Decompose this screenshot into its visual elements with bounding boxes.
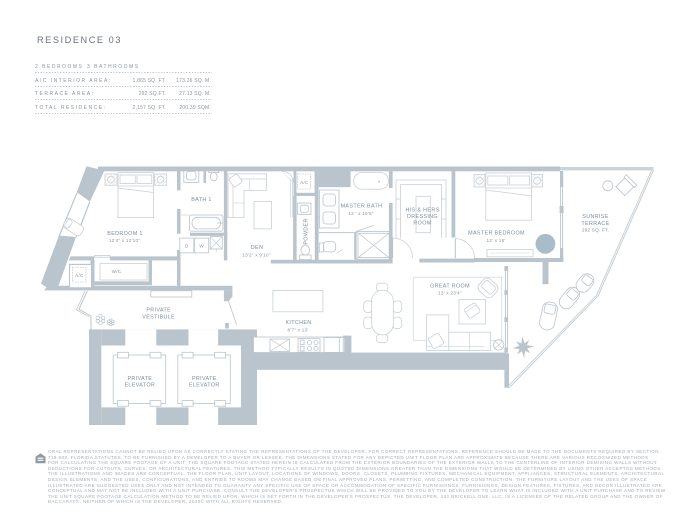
svg-text:BATH 1: BATH 1 [191,197,212,203]
svg-text:KITCHEN: KITCHEN [285,320,311,326]
svg-text:GREAT ROOM: GREAT ROOM [430,284,470,290]
svg-text:TERRACE: TERRACE [581,221,609,227]
svg-text:DRESSING: DRESSING [407,214,438,220]
svg-text:W: W [199,244,204,249]
svg-text:PRIVATE: PRIVATE [146,308,171,314]
svg-text:12'4" x 12'10": 12'4" x 12'10" [109,238,140,243]
svg-text:A/C: A/C [300,180,309,185]
svg-text:BEDROOM 1: BEDROOM 1 [107,231,143,237]
svg-text:8'7" x 13': 8'7" x 13' [288,328,309,333]
svg-text:12 ' x 10'5": 12 ' x 10'5" [348,211,373,216]
svg-text:PRIVATE: PRIVATE [127,376,152,382]
svg-text:ELEVATOR: ELEVATOR [189,382,220,388]
svg-text:ELEVATOR: ELEVATOR [124,382,155,388]
svg-text:POWDER: POWDER [304,218,310,244]
svg-text:ROOM: ROOM [413,221,431,227]
svg-text:13'2" x 9'10": 13'2" x 9'10" [242,253,271,258]
svg-text:A/C: A/C [75,273,84,278]
svg-text:12' x 15': 12' x 15' [486,238,505,243]
svg-text:D: D [185,244,189,249]
svg-text:MASTER BEDROOM: MASTER BEDROOM [468,231,525,237]
svg-text:DEN: DEN [251,245,263,251]
svg-text:292 SQ. FT.: 292 SQ. FT. [582,228,609,233]
svg-text:13' x 23'4": 13' x 23'4" [438,291,462,296]
svg-text:SUNRISE: SUNRISE [582,214,608,220]
svg-text:PRIVATE: PRIVATE [192,376,217,382]
svg-text:W/C: W/C [112,269,122,274]
svg-text:VESTIBULE: VESTIBULE [142,315,175,321]
svg-text:MASTER BATH: MASTER BATH [341,204,383,210]
svg-text:HIS & HERS: HIS & HERS [405,208,439,214]
